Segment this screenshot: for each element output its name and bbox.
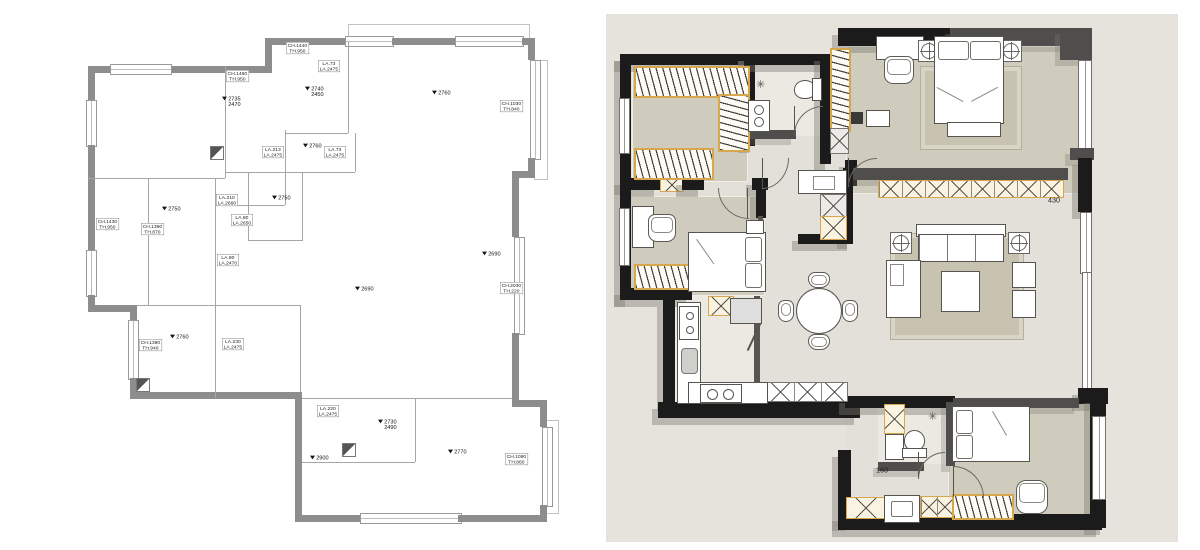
- master-wardrobe: [830, 48, 851, 132]
- corner-fixture-icon: [136, 378, 150, 392]
- wall-segment: [663, 300, 675, 404]
- wall-segment: [756, 190, 766, 218]
- master-bed: [934, 36, 1004, 124]
- wall-segment: [130, 392, 302, 399]
- wall-segment: [528, 38, 535, 60]
- window-spec-label: LA.80LA.2650: [231, 214, 253, 226]
- window: [86, 100, 97, 147]
- window: [455, 36, 524, 47]
- window-spec-label: LA.73LA.2475: [324, 146, 346, 158]
- level-triangle-icon: [432, 91, 437, 95]
- window-spec-label: CH.1030TH.840: [500, 100, 523, 112]
- partition: [137, 305, 300, 306]
- dining-chair: [778, 300, 794, 322]
- side-table: [1012, 262, 1036, 288]
- wall-segment: [540, 400, 547, 427]
- partition: [248, 172, 249, 240]
- dining-chair: [842, 300, 858, 322]
- elevation-label: 27402450: [305, 86, 324, 98]
- wall-segment: [88, 145, 95, 250]
- wall-segment: [458, 515, 547, 522]
- partition: [302, 172, 303, 240]
- elevation-label: 2690: [355, 286, 374, 292]
- window: [1092, 416, 1106, 500]
- wall-segment: [512, 333, 519, 407]
- cloakroom-wardrobe: [718, 94, 750, 152]
- washing-machine: [884, 495, 920, 523]
- elevation-label: 2760: [432, 90, 451, 96]
- window: [1080, 212, 1092, 274]
- kitchen-sink: [679, 306, 699, 340]
- hall-cabinet: [820, 216, 847, 240]
- partition: [285, 133, 348, 134]
- cloakroom-wardrobe: [634, 148, 714, 180]
- level-triangle-icon: [448, 450, 453, 454]
- partition: [148, 178, 149, 305]
- wall-segment: [392, 38, 455, 45]
- window-spec-label: CH.1390TH.870: [141, 223, 164, 235]
- partition: [225, 205, 285, 206]
- trash-bin: [681, 348, 698, 374]
- window: [110, 64, 172, 75]
- dining-chair: [808, 334, 830, 350]
- desk-chair: [884, 56, 914, 84]
- elevation-label: 2750: [162, 206, 181, 212]
- window-spec-label: LA.80LA.2470: [217, 254, 239, 266]
- window-spec-label: LA.230LA.2475: [222, 338, 244, 350]
- door-leaf: [848, 158, 849, 186]
- level-triangle-icon: [482, 252, 487, 256]
- coffee-table: [941, 271, 980, 312]
- stove: [700, 384, 742, 403]
- wall-item: [866, 110, 890, 127]
- level-triangle-icon: [272, 196, 277, 200]
- built-in-cabinet: [660, 178, 684, 192]
- toilet-tank: [812, 78, 822, 101]
- wall-segment: [620, 54, 756, 65]
- partition: [348, 42, 349, 133]
- partition: [302, 398, 512, 399]
- bedroom2-wardrobe: [634, 264, 694, 290]
- wall-segment: [658, 402, 860, 418]
- window: [1078, 60, 1092, 152]
- shower-icon: ✳: [756, 80, 765, 91]
- partition: [355, 133, 356, 172]
- partition: [225, 172, 355, 173]
- sofa-seats: [918, 234, 1004, 262]
- nightstand: [746, 220, 764, 234]
- partition: [248, 240, 303, 241]
- dining-chair: [808, 272, 830, 288]
- side-table: [1012, 290, 1036, 318]
- corner-fixture-icon: [342, 443, 356, 457]
- partition: [215, 178, 216, 398]
- floor-plan-image: 27352470 27402450 2760 2760: [0, 0, 1200, 550]
- master-cabinet-strip: [878, 180, 1064, 198]
- window-spec-label: LA.213LA.2475: [262, 146, 284, 158]
- wall-segment: [848, 168, 1068, 180]
- window: [345, 36, 394, 47]
- window: [514, 237, 525, 335]
- elevation-label: 27302490: [378, 419, 397, 431]
- partition: [88, 178, 225, 179]
- door-leaf: [794, 106, 795, 134]
- level-triangle-icon: [162, 207, 167, 211]
- elevation-label: 2900: [310, 455, 329, 461]
- elevation-label: 2770: [448, 449, 467, 455]
- level-triangle-icon: [378, 420, 383, 424]
- elevation-label: 2760: [170, 334, 189, 340]
- level-triangle-icon: [305, 87, 310, 91]
- window: [86, 250, 97, 297]
- window: [619, 208, 630, 266]
- shower-icon: ✳: [928, 412, 937, 423]
- partition: [415, 398, 416, 462]
- armchair: [1016, 480, 1048, 514]
- fridge: [730, 298, 762, 324]
- bottom-cabinet: [920, 496, 954, 518]
- desk-chair: [648, 214, 676, 242]
- wall-item: [851, 112, 863, 124]
- corner-fixture-icon: [210, 146, 224, 160]
- window: [1082, 272, 1092, 390]
- bottom-cabinet-strip: [766, 382, 848, 402]
- dining-table: [796, 288, 842, 334]
- elevation-label: 2690: [482, 251, 501, 257]
- window: [530, 60, 541, 160]
- window-spec-label: CH.1430TH.950: [96, 218, 119, 230]
- toilet-tank: [902, 448, 927, 458]
- level-triangle-icon: [303, 144, 308, 148]
- window: [542, 427, 553, 507]
- bed-bench: [947, 122, 1001, 137]
- hall-console: [798, 170, 847, 194]
- wall-segment: [295, 399, 302, 522]
- wall-segment: [170, 66, 268, 73]
- plant-icon: [1008, 232, 1030, 254]
- partition: [302, 462, 415, 463]
- hall-cabinet: [820, 194, 847, 218]
- bedroom3-bed: [952, 406, 1030, 462]
- partition: [300, 305, 301, 392]
- plant-icon: [890, 232, 912, 254]
- elevation-label: 2760: [303, 143, 322, 149]
- window: [128, 320, 139, 380]
- bedroom2-bed: [688, 232, 766, 292]
- window-spec-label: LA.73LA.2475: [318, 60, 340, 72]
- window: [360, 513, 462, 524]
- bathroom1-sink: [748, 100, 770, 132]
- door-leaf: [762, 158, 763, 188]
- level-triangle-icon: [170, 335, 175, 339]
- window-spec-label: LA.220LA.2475: [317, 405, 339, 417]
- door-leaf: [953, 466, 954, 497]
- window-spec-label: CH.1390TH.940: [139, 339, 162, 351]
- wall-segment: [1078, 158, 1092, 212]
- window-spec-label: CH.1090TH.860: [505, 453, 528, 465]
- wall-segment: [88, 66, 95, 100]
- wall-segment: [88, 305, 137, 312]
- wall-segment: [512, 171, 519, 237]
- window: [619, 98, 630, 154]
- partition: [285, 130, 286, 205]
- wall-segment: [295, 515, 362, 522]
- wall-segment: [1060, 28, 1092, 60]
- partition: [225, 66, 226, 178]
- level-triangle-icon: [355, 287, 360, 291]
- door-leaf: [747, 188, 748, 218]
- built-in-cabinet: [830, 128, 849, 154]
- level-triangle-icon: [310, 456, 315, 460]
- bottom-cabinet: [846, 497, 886, 519]
- door-leaf: [918, 452, 919, 478]
- bathroom2-cabinet: [884, 404, 905, 434]
- wall-segment: [265, 38, 345, 45]
- chaise-lounge: [886, 260, 921, 318]
- elevation-label: 2750: [272, 195, 291, 201]
